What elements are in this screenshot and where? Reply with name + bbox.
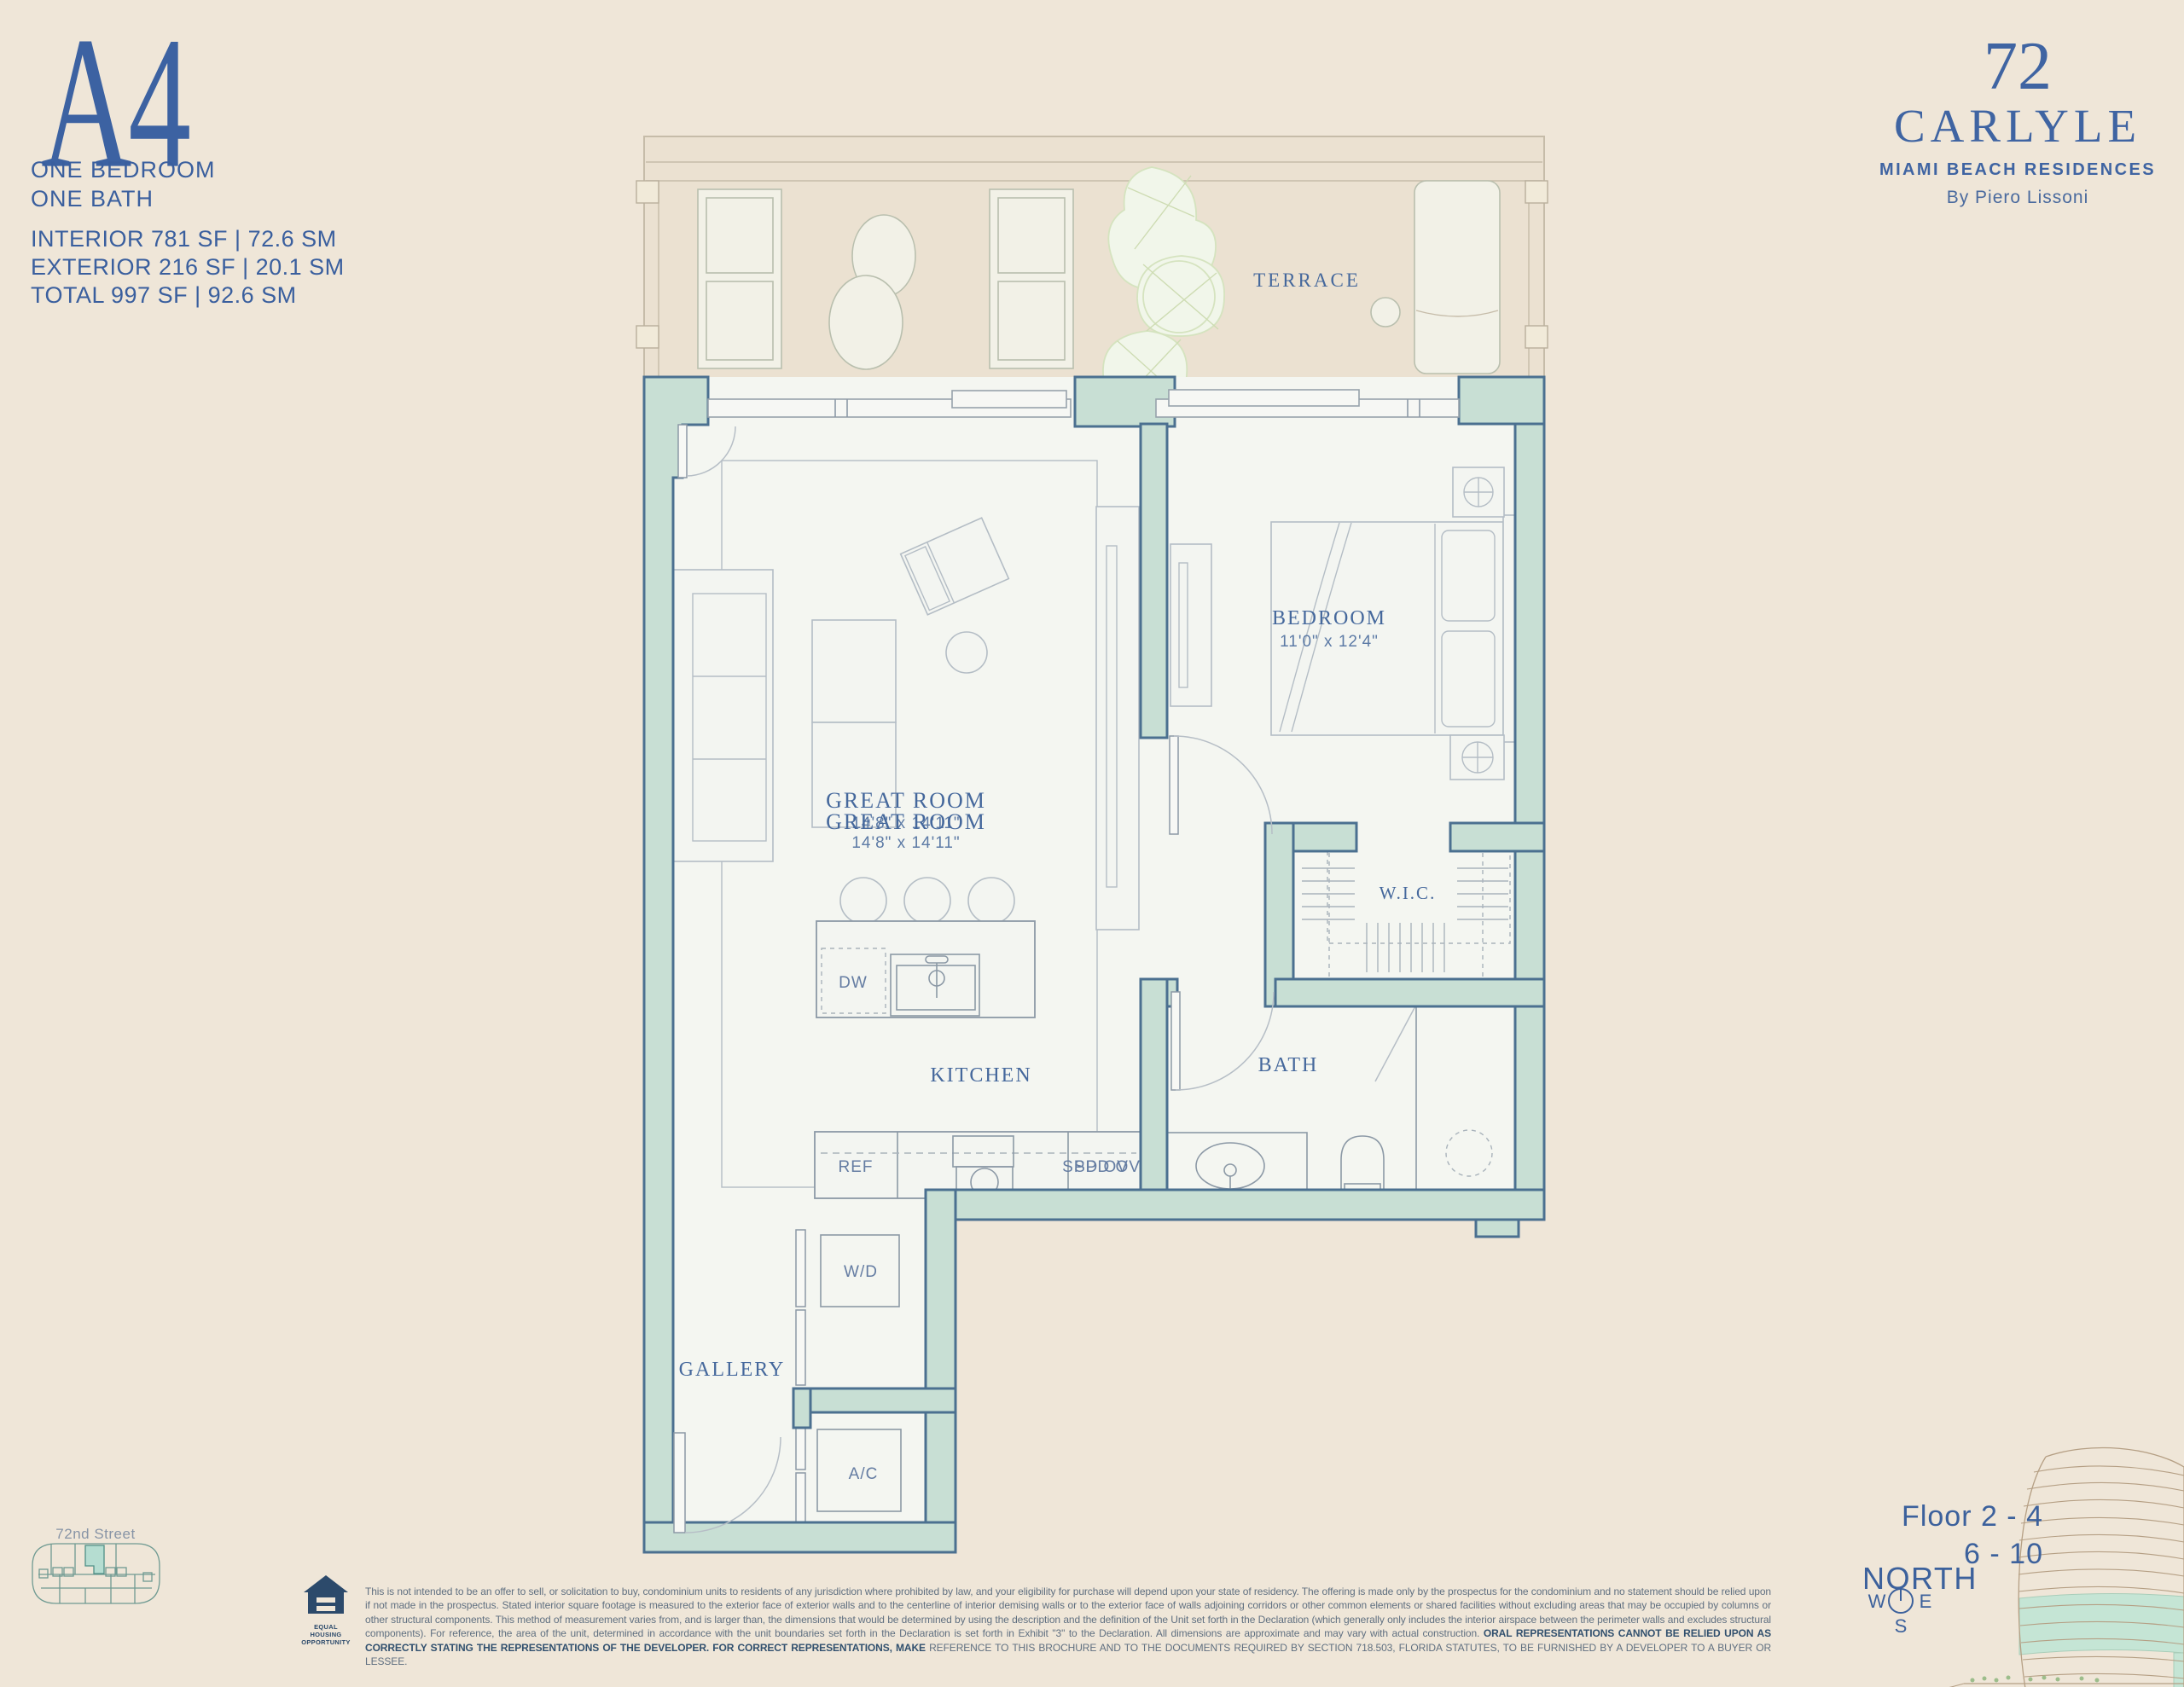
- compass-south: S: [1895, 1615, 1908, 1637]
- closet-divider-wall: [793, 1388, 955, 1412]
- closet-door: [796, 1310, 805, 1385]
- side-table: [946, 632, 987, 673]
- terrace-wall-cap: [636, 181, 659, 203]
- street-label: 72nd Street: [55, 1526, 135, 1542]
- dw-label: DW: [839, 974, 868, 992]
- ref-label: REF: [839, 1158, 874, 1176]
- closet-door: [796, 1230, 805, 1307]
- closet-divider-pier: [793, 1388, 810, 1428]
- counter-stool: [968, 878, 1014, 924]
- sofa: [672, 570, 773, 861]
- great-room-label-duplicate: GREAT ROOM: [826, 809, 986, 834]
- bedroom-label: BEDROOM: [1272, 607, 1386, 629]
- terrace-wall-cap: [1525, 326, 1548, 348]
- terrace-stool: [829, 275, 903, 369]
- coffee-table: [812, 620, 896, 722]
- roof-plants: [1971, 1676, 2100, 1683]
- highlighted-unit: [85, 1545, 104, 1574]
- key-plan: 72nd Street: [32, 1526, 160, 1603]
- bottom-wall: [926, 1190, 1544, 1220]
- north-label: NORTH: [1862, 1561, 1978, 1597]
- gallery-bottom-wall: [644, 1522, 955, 1552]
- eho-text: EQUAL HOUSING OPPORTUNITY: [299, 1623, 353, 1646]
- terrace-side-table: [1371, 298, 1400, 327]
- terrace-label: TERRACE: [1253, 270, 1361, 291]
- terrace-wall-cap: [1525, 181, 1548, 203]
- bath-left-wall: [1141, 979, 1167, 1220]
- floors-line1: Floor 2 - 4: [1826, 1498, 2043, 1535]
- ac-label: A/C: [849, 1465, 879, 1483]
- terrace-daybed: [1414, 181, 1500, 374]
- counter-stool: [904, 878, 950, 924]
- closet-door: [796, 1473, 805, 1522]
- wd-label: W/D: [844, 1263, 878, 1281]
- wall-stub: [1476, 1220, 1519, 1237]
- terrace-wall-cap: [636, 326, 659, 348]
- media-console: [1096, 507, 1139, 930]
- wic-top-wall: [1450, 823, 1544, 851]
- terrace: [636, 136, 1548, 413]
- kitchen-island: [816, 921, 1035, 1017]
- equal-housing-icon: [302, 1574, 350, 1617]
- equal-housing-logo: EQUAL HOUSING OPPORTUNITY: [299, 1574, 353, 1646]
- nightstand: [1453, 467, 1504, 517]
- bedroom-partition-wall: [1141, 424, 1167, 738]
- disclaimer: This is not intended to be an offer to s…: [365, 1585, 1771, 1668]
- floor-plan: TERRACE GREAT ROOM 14'8" x 14'11" GREAT …: [0, 0, 2184, 1687]
- dresser: [1170, 544, 1211, 706]
- spd-ov-label-duplicate: SPD OV: [1074, 1158, 1141, 1176]
- bath-top-wall: [1275, 979, 1544, 1006]
- bath-label: BATH: [1258, 1054, 1319, 1076]
- kitchen-label: KITCHEN: [930, 1064, 1031, 1087]
- nightstand: [1450, 735, 1504, 780]
- terrace-lounge-chair: [990, 189, 1073, 368]
- gallery-label: GALLERY: [679, 1359, 786, 1381]
- counter-stool: [840, 878, 886, 924]
- wic-label: W.I.C.: [1380, 883, 1437, 903]
- bedroom-dims: 11'0" x 12'4": [1280, 633, 1379, 651]
- great-room-dims-duplicate: 14'8" x 14'11": [851, 834, 960, 852]
- brochure-page: A4 ONE BEDROOM ONE BATH INTERIOR 781 SF …: [0, 0, 2184, 1687]
- terrace-lounge-chair: [698, 189, 781, 368]
- gallery-right-wall: [926, 1190, 955, 1552]
